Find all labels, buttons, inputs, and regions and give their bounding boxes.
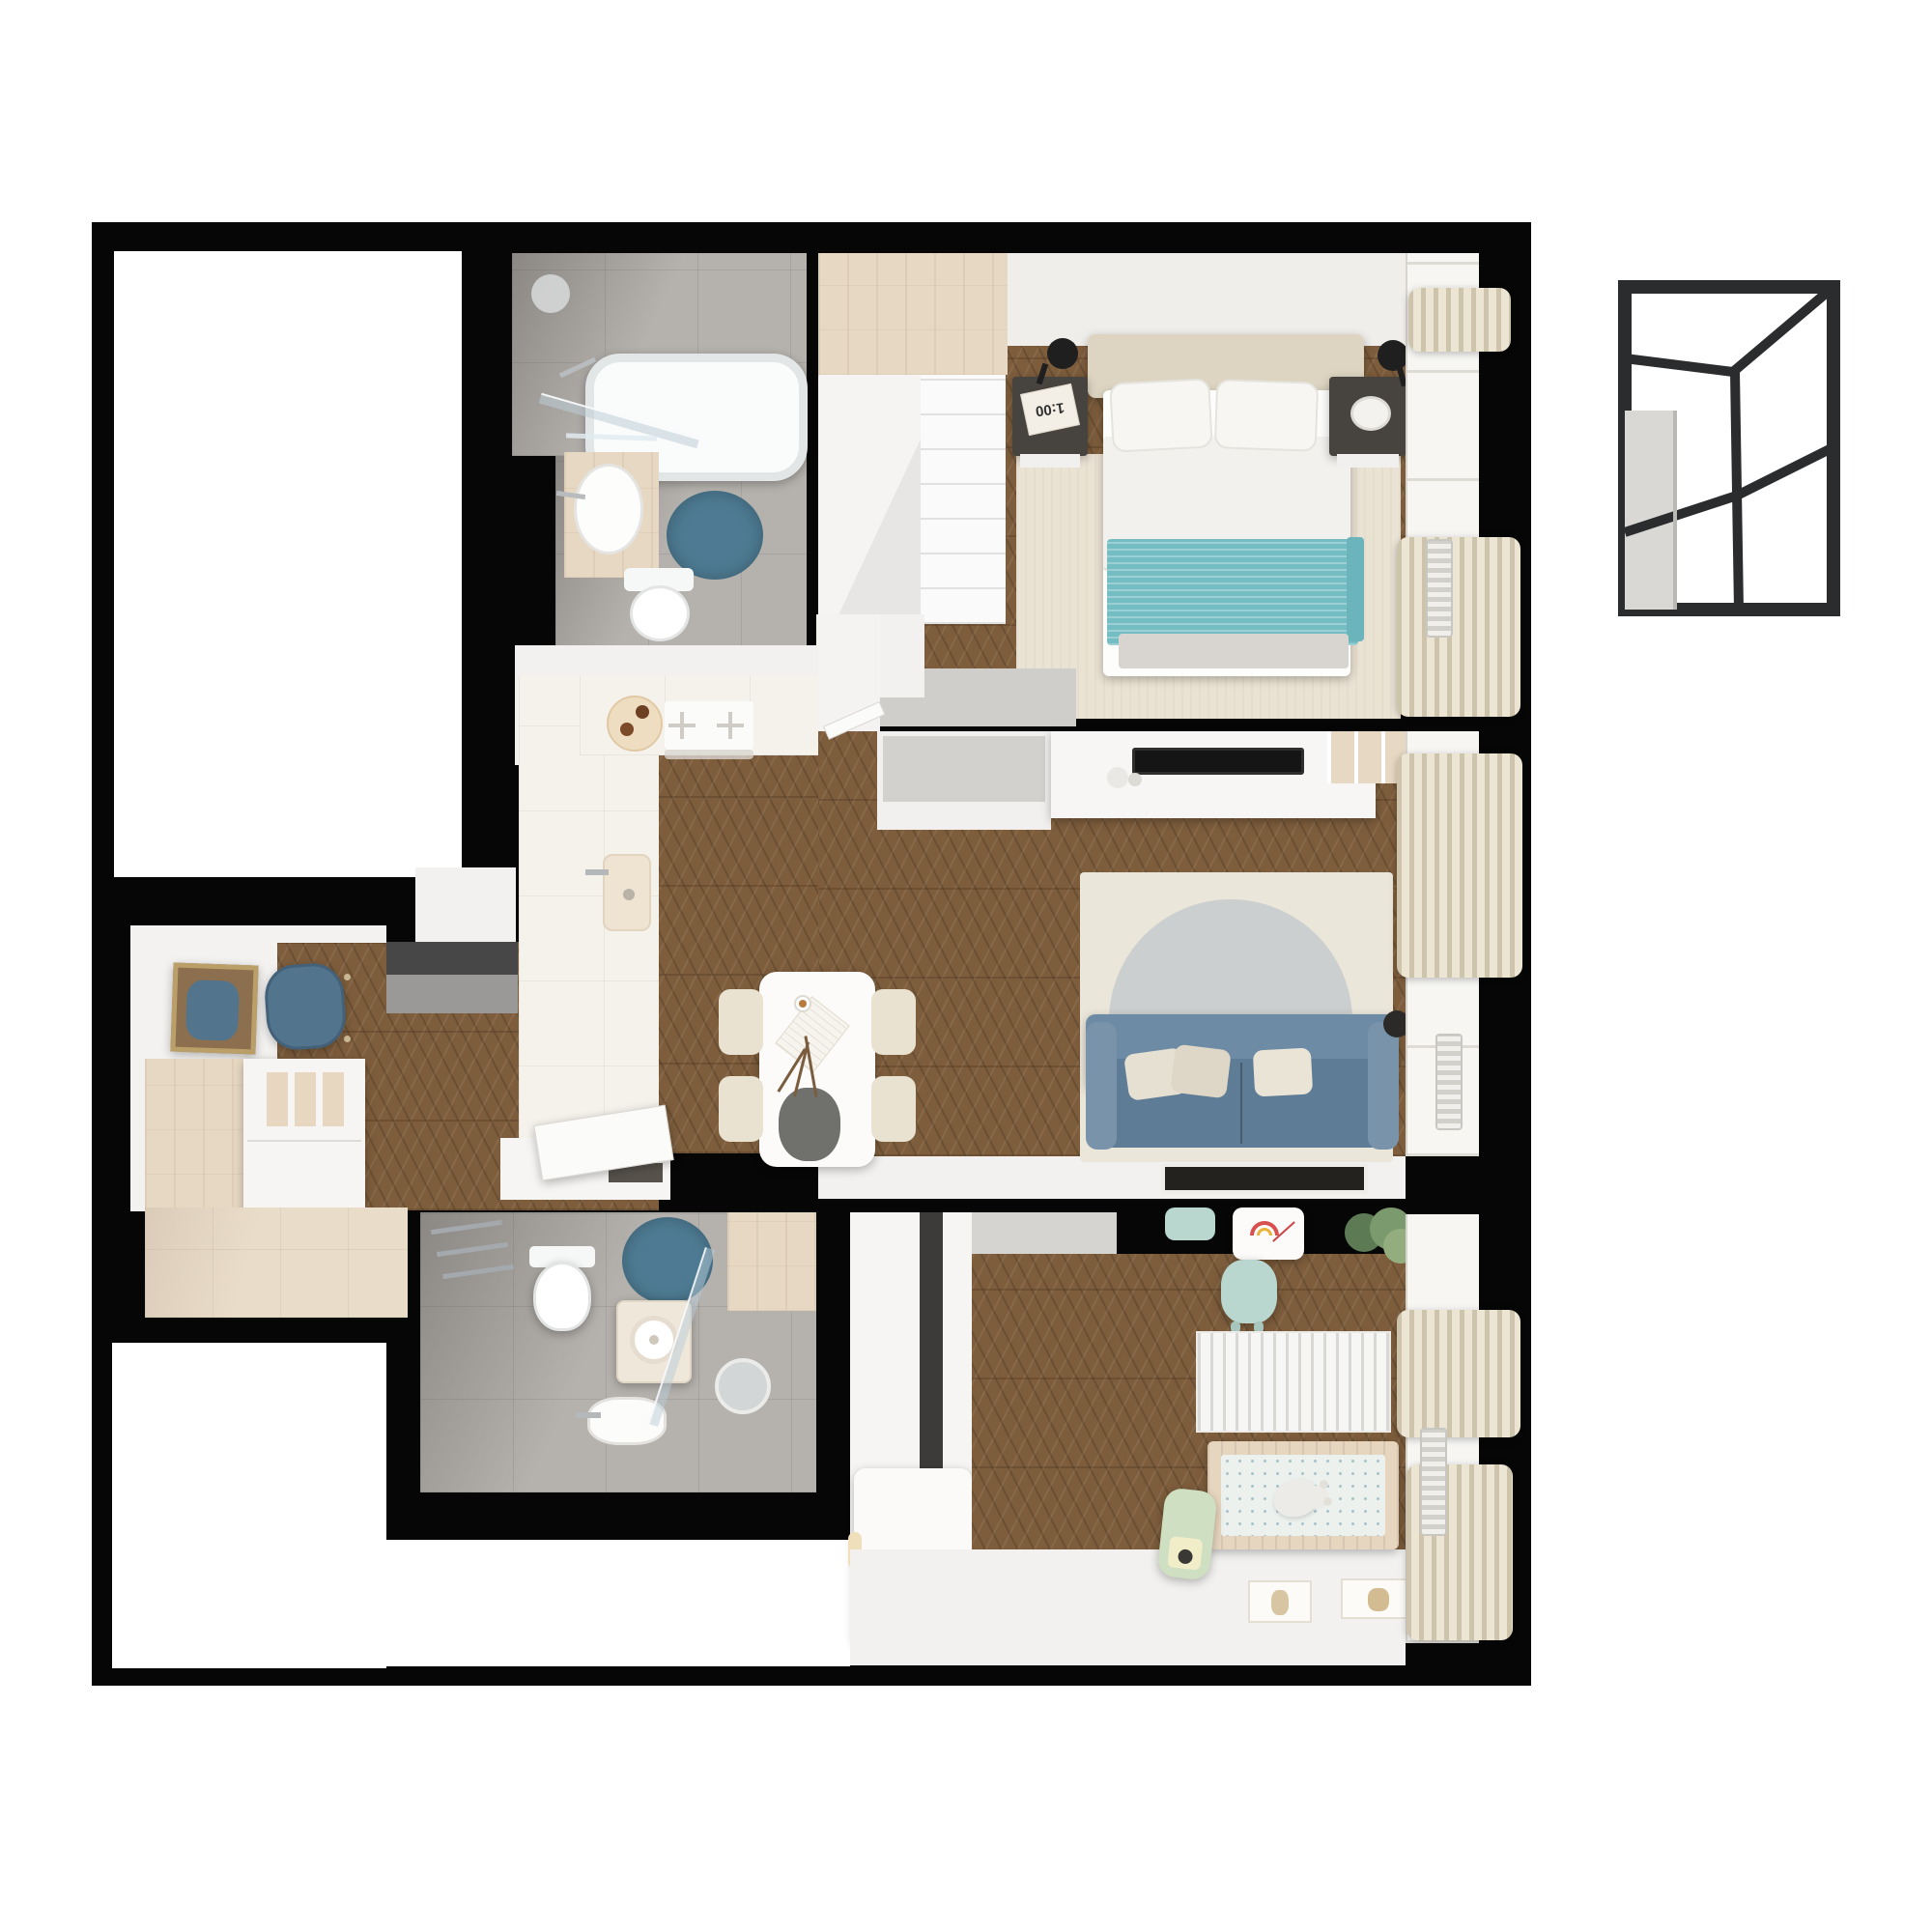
- terrace-upper-left: [114, 251, 462, 877]
- burner-cross-2b: [717, 724, 744, 727]
- basin2-faucet-icon: [576, 1412, 601, 1418]
- hall-closet-front: [883, 736, 1045, 802]
- mint-chair-top: [1165, 1207, 1215, 1240]
- sideboard-drawer-line: [247, 1140, 361, 1142]
- round-mirror: [715, 1358, 771, 1414]
- pillow-left: [1109, 378, 1213, 452]
- bedroom-radiator: [1426, 539, 1453, 638]
- tv: [1132, 748, 1304, 775]
- bed-foot-bench: [1119, 634, 1349, 668]
- sofa-armrest-left: [1086, 1022, 1117, 1150]
- hall-top-band: [277, 925, 386, 943]
- floor-poster-2: [1341, 1578, 1412, 1619]
- sofa-cushion-2: [1170, 1044, 1232, 1099]
- cubby-3: [323, 1072, 344, 1126]
- teal-blanket: [1107, 539, 1358, 645]
- washbasin: [574, 464, 643, 554]
- chair-leg-1: [344, 974, 351, 980]
- nursery-sliding-rail: [920, 1212, 943, 1479]
- cubby-2: [295, 1072, 316, 1126]
- washer-hub: [649, 1335, 659, 1345]
- winter-garden: [1604, 275, 1845, 621]
- teddy-ear-1: [1320, 1480, 1328, 1489]
- sofa-seam: [1240, 1063, 1242, 1144]
- mint-chair-bottom: [1221, 1260, 1277, 1323]
- burner-cross-1b: [668, 724, 696, 727]
- rainbow-inner: [1257, 1228, 1272, 1236]
- sink-drain: [623, 889, 635, 900]
- teddy-ear-2: [1323, 1497, 1332, 1506]
- nursery-curtain-top: [1397, 1310, 1520, 1437]
- kids-desk: [1233, 1207, 1304, 1260]
- walkway-bottom: [340, 1540, 850, 1666]
- poster-1-motif: [1271, 1590, 1289, 1615]
- shower-head-icon: [531, 274, 570, 313]
- nightstand-right-base: [1337, 454, 1399, 468]
- mirror-chair-reflection: [185, 980, 240, 1041]
- wall-sconce-left-icon: [1047, 338, 1078, 369]
- nursery-floor-band: [850, 1549, 1406, 1665]
- dining-chair-top-left: [719, 989, 763, 1055]
- doormat-dark: [386, 942, 518, 975]
- toilet-bowl: [630, 585, 690, 641]
- nightstand-left-base: [1020, 454, 1080, 468]
- bedroom-wall-face: [1005, 253, 1406, 346]
- wardrobe-shelf-column: [921, 375, 1006, 624]
- toy-car: [1156, 1487, 1217, 1580]
- fruit-tray: [607, 696, 663, 752]
- magazine-title: 1:00: [1022, 386, 1077, 432]
- induction-hob: [665, 701, 753, 750]
- living-curtain: [1397, 753, 1522, 978]
- console-vase-large: [1107, 767, 1128, 788]
- bedroom-curtain-bottom: [1397, 537, 1520, 717]
- bedroom-curtain-top: [1408, 288, 1511, 352]
- fruit-1: [636, 705, 649, 719]
- round-blue-rug: [667, 491, 763, 580]
- poster-2-motif: [1368, 1588, 1389, 1611]
- bathroom2-cabinet: [727, 1212, 816, 1311]
- rainbow-drawing-icon: [1250, 1221, 1279, 1236]
- sofa-armrest-right: [1368, 1022, 1399, 1150]
- vase: [779, 1088, 840, 1161]
- dining-chair-top-right: [871, 989, 916, 1055]
- doormat-light: [386, 975, 518, 1013]
- striped-rug: [1196, 1331, 1391, 1433]
- cubby-1: [267, 1072, 288, 1126]
- wall-sconce-right-icon: [1378, 340, 1408, 371]
- kitchen-sink: [603, 854, 651, 931]
- hob-hood-shadow: [665, 750, 753, 759]
- coffee: [799, 1000, 807, 1008]
- floor-plan-canvas: 1:00: [0, 0, 1932, 1932]
- wardrobe-doors: [818, 375, 923, 624]
- teal-blanket-fold: [1347, 537, 1364, 641]
- hall-tile-floor: [145, 1207, 408, 1318]
- living-radiator: [1435, 1034, 1463, 1130]
- console-vase-small: [1128, 773, 1142, 786]
- pillow-right: [1214, 379, 1319, 452]
- sofa-cushion-3: [1253, 1047, 1313, 1096]
- toilet2-bowl: [533, 1262, 591, 1331]
- sideboard-wood-top: [145, 1059, 243, 1219]
- dining-chair-bottom-left: [719, 1076, 763, 1142]
- sideboard-cubbies: [263, 1068, 348, 1130]
- fruit-2: [620, 723, 634, 736]
- nursery-radiator: [1420, 1428, 1447, 1536]
- chair-leg-2: [344, 1036, 351, 1042]
- coffee-cup: [794, 995, 811, 1012]
- kitchen-faucet-icon: [585, 869, 609, 875]
- steel-frame-icon: [1604, 275, 1845, 621]
- blue-desk-chair: [263, 961, 348, 1052]
- leaning-mirror: [170, 962, 258, 1054]
- nightstand-tray: [1350, 396, 1391, 431]
- kitchen-hall-opening: [415, 867, 516, 945]
- coffee-table: [1161, 1163, 1368, 1194]
- floor-poster-1: [1248, 1580, 1312, 1623]
- wardrobe-top: [818, 253, 1008, 375]
- dining-chair-bottom-right: [871, 1076, 916, 1142]
- wall-shelf-wood: [1327, 731, 1406, 783]
